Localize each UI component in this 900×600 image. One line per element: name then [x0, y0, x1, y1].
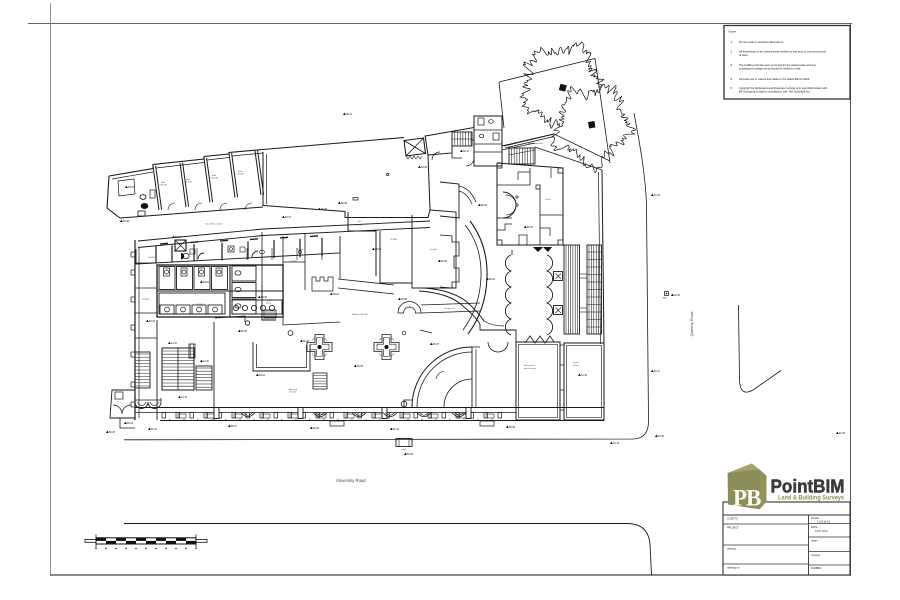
svg-text:NUMBER: NUMBER — [811, 567, 822, 570]
svg-text:46.11: 46.11 — [654, 370, 660, 373]
svg-text:56.81: 56.81 — [128, 186, 135, 189]
svg-text:56.03: 56.03 — [527, 226, 534, 229]
svg-text:56.07: 56.07 — [433, 343, 440, 346]
svg-text:45.79: 45.79 — [613, 442, 620, 445]
svg-text:56.08: 56.08 — [407, 453, 414, 456]
svg-text:56.21: 56.21 — [346, 113, 353, 116]
svg-text:51.30: 51.30 — [581, 374, 588, 377]
svg-text:56.08: 56.08 — [357, 365, 364, 368]
svg-text:PointBIM: PointBIM — [771, 477, 845, 497]
svg-text:56.10: 56.10 — [151, 428, 158, 431]
svg-text:56.05: 56.05 — [241, 330, 248, 333]
svg-text:CH 2.48: CH 2.48 — [185, 181, 192, 183]
svg-text:4.: 4. — [731, 77, 733, 81]
svg-text:1.: 1. — [731, 40, 733, 44]
svg-text:56.02: 56.02 — [203, 281, 210, 284]
svg-text:46.30: 46.30 — [839, 432, 846, 435]
svg-text:56.08: 56.08 — [303, 340, 310, 343]
svg-text:24.40: 24.40 — [203, 360, 210, 363]
svg-text:PB: PB — [733, 486, 761, 511]
svg-text:Queens Road: Queens Road — [689, 312, 694, 337]
svg-text:56.09: 56.09 — [375, 248, 382, 251]
svg-text:56.07: 56.07 — [285, 216, 292, 219]
svg-text:terrace: terrace — [573, 361, 579, 364]
svg-text:no higher CH: no higher CH — [444, 308, 455, 310]
svg-text:time of survey: time of survey — [524, 367, 536, 370]
svg-text:CH 2463: CH 2463 — [196, 304, 203, 306]
svg-text:CH n/a: CH n/a — [545, 199, 551, 201]
svg-text:1:100 @ A1: 1:100 @ A1 — [817, 521, 831, 524]
svg-text:56.04: 56.04 — [175, 236, 182, 239]
svg-text:BM: BM — [663, 298, 666, 300]
svg-text:PROJECT:: PROJECT: — [727, 527, 739, 530]
svg-text:CH 2.48: CH 2.48 — [160, 184, 167, 186]
svg-text:24.07.2014: 24.07.2014 — [815, 530, 828, 533]
svg-text:56.04: 56.04 — [259, 374, 266, 377]
svg-text:checked: checked — [811, 554, 821, 557]
svg-text:The building and site were sur: The building and site were surveyed for … — [739, 63, 816, 67]
svg-text:2.: 2. — [731, 50, 733, 54]
svg-text:DATE: DATE — [811, 526, 818, 529]
svg-text:BP Surveying Limited in accord: BP Surveying Limited in accordance with … — [739, 90, 811, 94]
svg-text:56.05: 56.05 — [441, 260, 448, 263]
svg-text:tea room: tea room — [430, 248, 438, 251]
svg-text:56.04: 56.04 — [489, 278, 496, 281]
svg-text:garden edge 46m: garden edge 46m — [528, 142, 543, 145]
svg-text:No access at: No access at — [524, 364, 535, 367]
svg-text:Land & Building Surveys: Land & Building Surveys — [778, 496, 845, 502]
svg-text:of work.: of work. — [739, 53, 749, 57]
svg-text:drawn: drawn — [811, 540, 818, 543]
svg-text:24.10: 24.10 — [181, 396, 188, 399]
svg-text:Notes: Notes — [729, 30, 737, 34]
svg-text:CH 2.48: CH 2.48 — [237, 173, 244, 175]
svg-text:56.09: 56.09 — [421, 166, 428, 169]
svg-text:48.6m: 48.6m — [532, 111, 538, 113]
svg-text:56.08: 56.08 — [341, 202, 348, 205]
svg-text:24.20: 24.20 — [171, 342, 178, 345]
svg-text:dining: dining — [266, 303, 271, 305]
svg-text:55.99: 55.99 — [509, 426, 516, 429]
svg-text:56.08: 56.08 — [401, 298, 408, 301]
svg-text:CH 2845: CH 2845 — [355, 224, 362, 226]
svg-text:56.08: 56.08 — [123, 220, 130, 223]
svg-text:Copyright for all designs and: Copyright for all designs and drawings i… — [739, 86, 828, 90]
svg-text:drawing: drawing — [727, 548, 736, 551]
svg-text:University Road: University Road — [336, 478, 366, 483]
svg-text:56.06: 56.06 — [127, 422, 134, 425]
svg-text:3.: 3. — [731, 63, 733, 67]
svg-text:CLIENTS: CLIENTS — [727, 518, 738, 521]
svg-text:Future: Future — [266, 299, 271, 302]
svg-text:56.06: 56.06 — [109, 431, 116, 434]
svg-text:Do not scale to ascertain dime: Do not scale to ascertain dimensions. — [739, 40, 784, 44]
svg-text:CH 4155: CH 4155 — [289, 392, 296, 394]
svg-text:subsequent enlargements should: subsequent enlargements should be verifi… — [739, 67, 801, 71]
svg-text:5.: 5. — [731, 86, 733, 90]
svg-text:Major hall: Major hall — [289, 388, 298, 391]
svg-text:CH 2.48: CH 2.48 — [211, 177, 218, 179]
svg-text:46.30: 46.30 — [658, 435, 665, 438]
svg-text:CH n/a: CH n/a — [573, 365, 579, 367]
svg-text:CH 3300: CH 3300 — [290, 261, 297, 263]
svg-text:46.40: 46.40 — [674, 294, 681, 297]
svg-text:56.08: 56.08 — [321, 208, 328, 211]
svg-text:56.13: 56.13 — [393, 428, 400, 431]
svg-text:porch: porch — [402, 449, 407, 451]
svg-text:56.03: 56.03 — [149, 320, 156, 323]
svg-text:drawing no: drawing no — [727, 567, 740, 570]
svg-text:CH 3395: CH 3395 — [142, 299, 149, 301]
svg-text:All levels are in metres and r: All levels are in metres and relate to t… — [739, 77, 810, 81]
svg-text:56.06: 56.06 — [333, 293, 340, 296]
svg-text:Ground floor corridor: Ground floor corridor — [205, 223, 223, 226]
svg-text:All dimensions to be checked a: All dimensions to be checked and verifie… — [739, 50, 826, 54]
svg-text:56.07: 56.07 — [231, 425, 238, 428]
svg-text:CH 2450: CH 2450 — [148, 257, 155, 259]
svg-text:56.06: 56.06 — [481, 204, 488, 207]
svg-text:Ballroom CH 4150: Ballroom CH 4150 — [352, 313, 367, 316]
svg-text:56.12: 56.12 — [463, 150, 470, 153]
svg-text:56.06: 56.06 — [313, 427, 320, 430]
svg-text:46.45: 46.45 — [654, 194, 661, 197]
svg-text:CH 2860: CH 2860 — [390, 239, 397, 241]
svg-text:Bar: Bar — [358, 220, 361, 223]
